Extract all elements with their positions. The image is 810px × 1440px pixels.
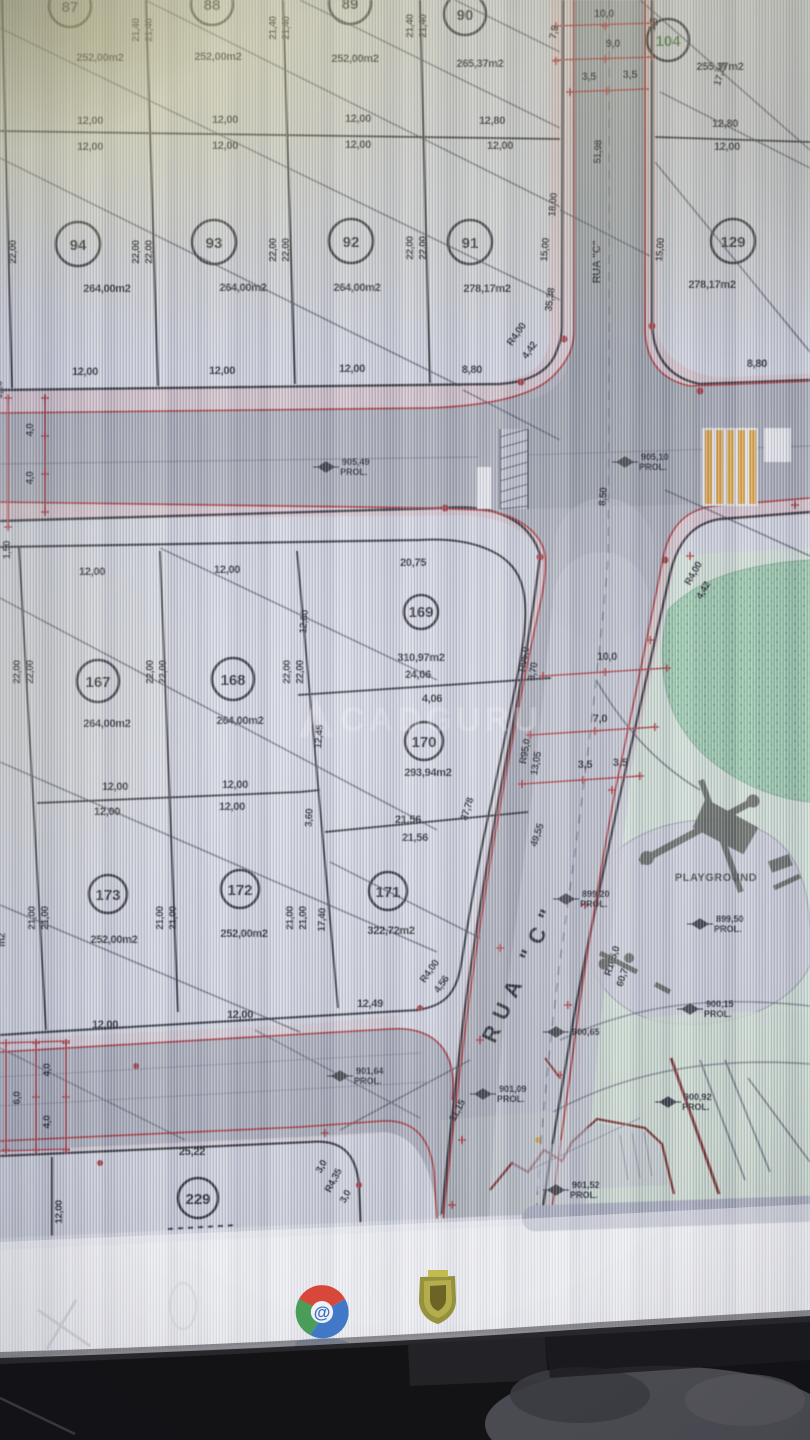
svg-text:92: 92 — [343, 234, 360, 251]
svg-text:21,40: 21,40 — [268, 16, 279, 40]
svg-text:21,00: 21,00 — [168, 906, 179, 930]
svg-text:15,00: 15,00 — [654, 237, 667, 262]
svg-text:21,40: 21,40 — [405, 14, 416, 38]
svg-text:4,0: 4,0 — [25, 423, 36, 437]
svg-text:168: 168 — [220, 672, 245, 689]
svg-text:21,40: 21,40 — [131, 18, 142, 42]
svg-text:264,00m2: 264,00m2 — [83, 718, 130, 730]
svg-text:8,50: 8,50 — [597, 486, 610, 506]
svg-text:PLAYGROUND: PLAYGROUND — [675, 872, 757, 884]
svg-text:12,00: 12,00 — [227, 1009, 253, 1021]
svg-text:7,0: 7,0 — [593, 713, 608, 725]
svg-text:12,00: 12,00 — [72, 366, 98, 378]
svg-text:PROL.: PROL. — [497, 1094, 525, 1104]
svg-text:293,94m2: 293,94m2 — [404, 767, 451, 779]
svg-text:22,00: 22,00 — [131, 240, 142, 264]
svg-text:1,5: 1,5 — [647, 16, 660, 31]
svg-text:3,5: 3,5 — [582, 71, 597, 83]
svg-text:252,00m2: 252,00m2 — [220, 928, 267, 940]
svg-text:1,20: 1,20 — [0, 380, 5, 399]
svg-text:12,00: 12,00 — [212, 114, 238, 126]
svg-text:12,00: 12,00 — [54, 1200, 65, 1224]
svg-text:22,00: 22,00 — [12, 660, 23, 684]
svg-text:12,80: 12,80 — [479, 115, 505, 127]
svg-text:3,60: 3,60 — [304, 808, 316, 828]
svg-text:3,5: 3,5 — [623, 69, 638, 81]
svg-text:22,00: 22,00 — [144, 240, 155, 264]
svg-text:12,00: 12,00 — [209, 365, 235, 377]
svg-text:900,15: 900,15 — [706, 999, 734, 1009]
svg-text:21,00: 21,00 — [27, 906, 38, 930]
svg-text:278,17m2: 278,17m2 — [463, 283, 510, 295]
svg-text:12,00: 12,00 — [212, 140, 238, 152]
svg-text:310,97m2: 310,97m2 — [397, 652, 444, 664]
svg-text:90: 90 — [457, 7, 474, 24]
svg-text:901,09: 901,09 — [499, 1084, 527, 1094]
svg-text:12,00: 12,00 — [219, 801, 245, 813]
svg-text:12,49: 12,49 — [357, 998, 383, 1010]
svg-text:CADGURU: CADGURU — [340, 701, 542, 739]
svg-text:22,00: 22,00 — [145, 660, 156, 684]
svg-text:12,80: 12,80 — [712, 118, 738, 130]
svg-text:169: 169 — [408, 604, 433, 621]
svg-text:905,49: 905,49 — [342, 457, 370, 467]
svg-text:264,00m2: 264,00m2 — [333, 282, 380, 294]
svg-text:21,00: 21,00 — [40, 906, 51, 930]
svg-text:4,0: 4,0 — [25, 471, 36, 485]
svg-text:21,56: 21,56 — [402, 832, 428, 844]
svg-text:278,17m2: 278,17m2 — [688, 279, 735, 291]
svg-text:22,00: 22,00 — [418, 236, 429, 260]
svg-text:264,00m2: 264,00m2 — [219, 282, 266, 294]
svg-text:10,0: 10,0 — [597, 651, 617, 663]
svg-text:89: 89 — [342, 0, 359, 13]
svg-text:1,50: 1,50 — [2, 540, 13, 559]
svg-text:25,22: 25,22 — [179, 1146, 205, 1158]
svg-text:12,00: 12,00 — [222, 779, 248, 791]
svg-text:12,00: 12,00 — [345, 113, 371, 125]
svg-text:8,80: 8,80 — [462, 364, 482, 376]
svg-text:12,00: 12,00 — [94, 806, 120, 818]
svg-text:322,72m2: 322,72m2 — [367, 925, 414, 937]
svg-text:12,00: 12,00 — [102, 781, 128, 793]
svg-text:12,80: 12,80 — [298, 609, 311, 634]
svg-text:24,06: 24,06 — [405, 669, 431, 681]
svg-text:252,00m2: 252,00m2 — [331, 53, 378, 65]
svg-text:12,00: 12,00 — [339, 363, 365, 375]
svg-text:901,52: 901,52 — [572, 1180, 600, 1190]
svg-text:21,56: 21,56 — [395, 814, 421, 826]
svg-text:PROL.: PROL. — [570, 1190, 598, 1200]
svg-text:22,00: 22,00 — [282, 660, 293, 684]
svg-text:173: 173 — [95, 887, 120, 904]
svg-text:PROL.: PROL. — [354, 1076, 382, 1086]
svg-text:87: 87 — [62, 0, 79, 16]
svg-text:252,00m2: 252,00m2 — [194, 51, 241, 63]
svg-text:91: 91 — [462, 235, 479, 252]
svg-text:6,0: 6,0 — [12, 1091, 23, 1105]
svg-text:899,50: 899,50 — [716, 914, 744, 924]
svg-text:21,00: 21,00 — [298, 906, 309, 930]
svg-text:18,00: 18,00 — [547, 192, 560, 217]
svg-text:m2: m2 — [0, 932, 8, 947]
svg-text:PROL.: PROL. — [580, 899, 608, 909]
svg-text:4,0: 4,0 — [42, 1115, 53, 1129]
svg-text:RUA "C": RUA "C" — [591, 241, 603, 284]
svg-text:12,00: 12,00 — [487, 140, 513, 152]
svg-text:12,00: 12,00 — [345, 139, 371, 151]
svg-text:22,00: 22,00 — [8, 240, 19, 264]
svg-text:3,5: 3,5 — [613, 757, 628, 769]
svg-text:15,00: 15,00 — [539, 237, 552, 262]
svg-text:12,00: 12,00 — [214, 564, 240, 576]
svg-text:88: 88 — [204, 0, 221, 14]
svg-text:22,00: 22,00 — [268, 238, 279, 262]
svg-text:94: 94 — [70, 237, 87, 254]
svg-text:22,00: 22,00 — [25, 660, 36, 684]
svg-text:12,00: 12,00 — [77, 141, 103, 153]
svg-text:17,40: 17,40 — [317, 907, 329, 932]
svg-text:264,00m2: 264,00m2 — [83, 283, 130, 295]
svg-text:9,0: 9,0 — [606, 38, 621, 50]
svg-text:21,40: 21,40 — [281, 16, 292, 40]
svg-text:21,00: 21,00 — [155, 906, 166, 930]
svg-text:4,0: 4,0 — [42, 1063, 53, 1077]
svg-text:900,92: 900,92 — [684, 1092, 712, 1102]
svg-text:12,00: 12,00 — [77, 115, 103, 127]
svg-text:22,00: 22,00 — [281, 238, 292, 262]
svg-text:104: 104 — [655, 33, 681, 50]
svg-text:171: 171 — [375, 884, 400, 901]
svg-text:12,00: 12,00 — [79, 566, 105, 578]
svg-text:172: 172 — [227, 882, 252, 899]
svg-text:3,5: 3,5 — [578, 759, 593, 771]
svg-text:905,10: 905,10 — [641, 452, 669, 462]
svg-text:252,00m2: 252,00m2 — [76, 52, 123, 64]
svg-text:22,00: 22,00 — [405, 236, 416, 260]
svg-text:20,75: 20,75 — [400, 557, 426, 569]
svg-text:12,00: 12,00 — [714, 141, 740, 153]
svg-text:167: 167 — [85, 674, 110, 691]
svg-text:22,00: 22,00 — [295, 660, 306, 684]
svg-text:8,80: 8,80 — [747, 358, 767, 370]
svg-text:21,40: 21,40 — [418, 14, 429, 38]
svg-text:265,37m2: 265,37m2 — [456, 58, 503, 70]
svg-text:PROL.: PROL. — [639, 462, 667, 472]
svg-text:PROL.: PROL. — [714, 924, 742, 934]
svg-text:12,00: 12,00 — [92, 1019, 118, 1031]
svg-text:51,98: 51,98 — [592, 139, 604, 164]
svg-text:264,00m2: 264,00m2 — [216, 715, 263, 727]
svg-text:93: 93 — [206, 235, 223, 252]
svg-text:21,00: 21,00 — [285, 906, 296, 930]
svg-text:22,00: 22,00 — [158, 660, 169, 684]
svg-text:PROL.: PROL. — [340, 467, 368, 477]
svg-text:21,40: 21,40 — [144, 18, 155, 42]
svg-text:899,20: 899,20 — [582, 889, 610, 899]
svg-text:PROL.: PROL. — [704, 1009, 732, 1019]
svg-text:10,0: 10,0 — [594, 8, 614, 20]
svg-text:901,64: 901,64 — [356, 1066, 384, 1076]
svg-text:252,00m2: 252,00m2 — [90, 934, 137, 946]
svg-text:129: 129 — [720, 234, 745, 251]
svg-text:900,65: 900,65 — [572, 1027, 600, 1037]
svg-text:229: 229 — [185, 1191, 210, 1208]
svg-text:PROL.: PROL. — [682, 1102, 710, 1112]
